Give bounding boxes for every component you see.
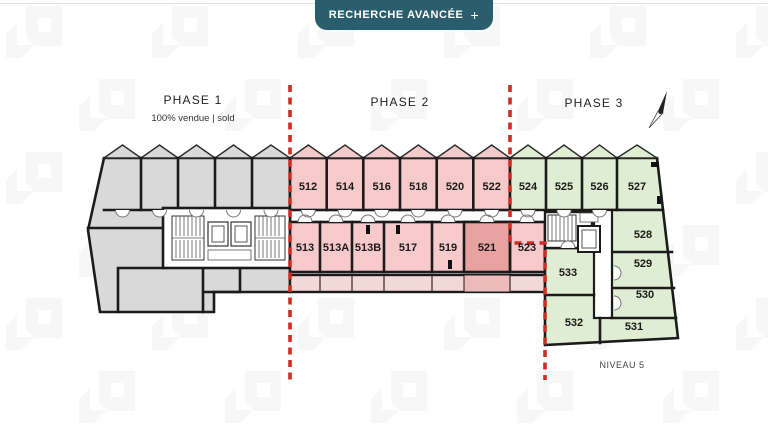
unit-520[interactable]: 520 bbox=[446, 181, 464, 193]
unit-521[interactable]: 521 bbox=[478, 242, 496, 254]
phase2-label: PHASE 2 bbox=[370, 95, 429, 109]
stairwell-right bbox=[255, 216, 285, 260]
unit-518[interactable]: 518 bbox=[409, 181, 427, 193]
unit-522[interactable]: 522 bbox=[483, 181, 501, 193]
unit-530[interactable]: 530 bbox=[636, 289, 654, 301]
elevator-phase3 bbox=[578, 226, 600, 252]
north-arrow-icon bbox=[649, 91, 667, 128]
unit-525[interactable]: 525 bbox=[555, 181, 573, 193]
unit-514[interactable]: 514 bbox=[336, 181, 355, 193]
unit-516[interactable]: 516 bbox=[373, 181, 391, 193]
stairwell-left bbox=[172, 216, 204, 260]
unit-513[interactable]: 513 bbox=[296, 242, 314, 254]
phase3-label: PHASE 3 bbox=[564, 96, 623, 110]
unit-528[interactable]: 528 bbox=[634, 229, 652, 241]
unit-529[interactable]: 529 bbox=[634, 258, 652, 270]
unit-526[interactable]: 526 bbox=[590, 181, 608, 193]
phase1-label: PHASE 1 bbox=[163, 93, 222, 107]
unit-512[interactable]: 512 bbox=[299, 181, 317, 193]
corridor-521-highlight bbox=[464, 275, 510, 292]
advanced-search-label: RECHERCHE AVANCÉE bbox=[329, 9, 464, 21]
level-label: NIVEAU 5 bbox=[599, 360, 644, 370]
unit-531[interactable]: 531 bbox=[625, 321, 643, 333]
phase1-balcony-sawtooth bbox=[104, 145, 290, 158]
plus-icon: + bbox=[470, 7, 479, 23]
unit-527[interactable]: 527 bbox=[628, 181, 646, 193]
unit-513B[interactable]: 513B bbox=[355, 242, 381, 254]
phase2-area bbox=[290, 145, 545, 292]
unit-532[interactable]: 532 bbox=[565, 317, 583, 329]
unit-513A[interactable]: 513A bbox=[323, 242, 349, 254]
phase3-balcony-sawtooth bbox=[510, 145, 657, 158]
floor-plan: PHASE 1 100% vendue | sold PHASE 2 PHASE… bbox=[0, 0, 768, 432]
phase2-balcony-sawtooth bbox=[290, 145, 510, 158]
unit-533[interactable]: 533 bbox=[559, 267, 577, 279]
stairwell-phase3 bbox=[548, 215, 576, 241]
phase1-status: 100% vendue | sold bbox=[151, 113, 234, 124]
unit-524[interactable]: 524 bbox=[519, 181, 538, 193]
unit-523[interactable]: 523 bbox=[518, 242, 536, 254]
unit-519[interactable]: 519 bbox=[439, 242, 457, 254]
phase1-area bbox=[88, 145, 290, 312]
unit-517[interactable]: 517 bbox=[399, 242, 417, 254]
advanced-search-button[interactable]: RECHERCHE AVANCÉE + bbox=[315, 0, 493, 30]
